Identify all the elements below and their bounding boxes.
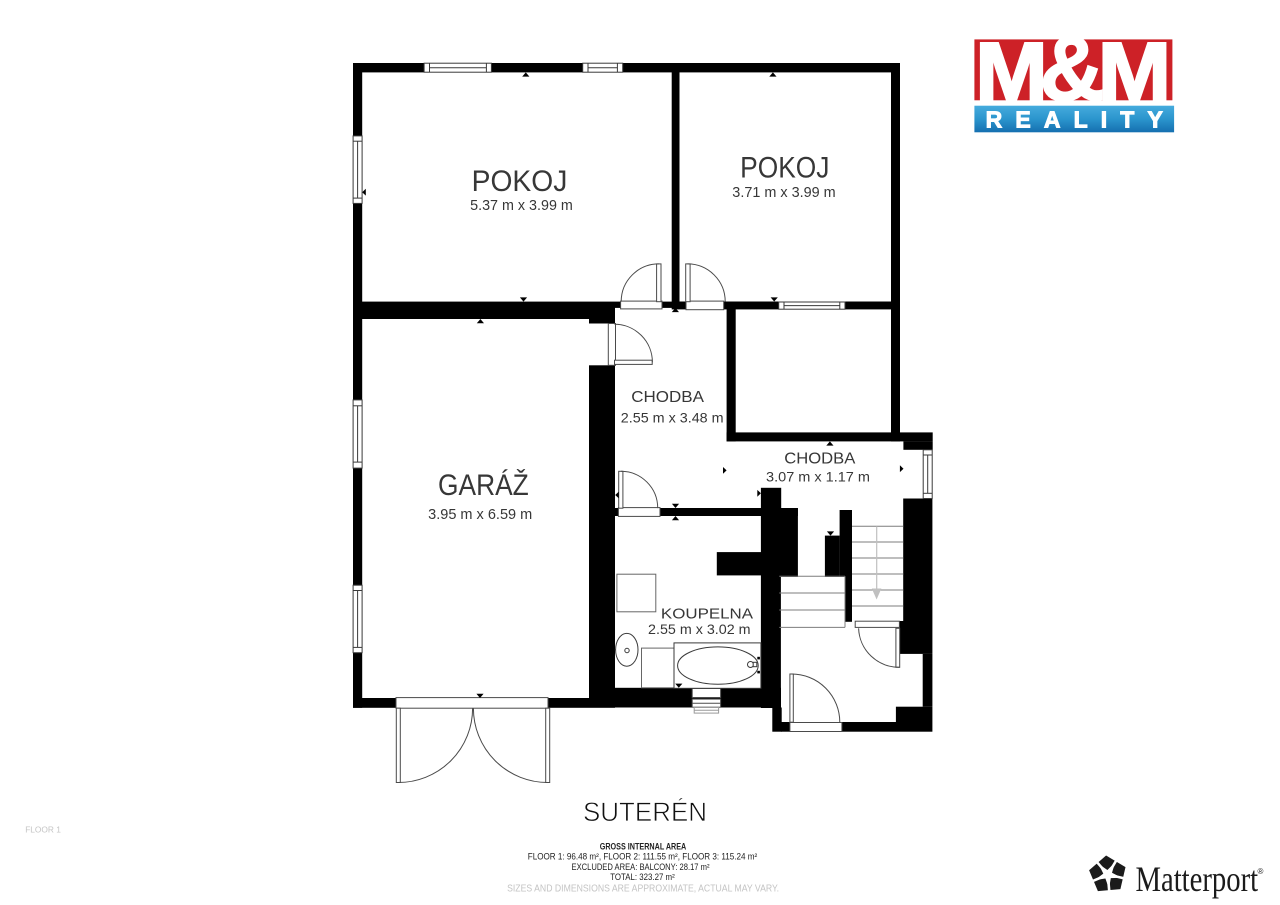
svg-text:3.95 m x 6.59 m: 3.95 m x 6.59 m xyxy=(428,506,532,523)
svg-text:Matterport: Matterport xyxy=(1136,859,1259,899)
svg-text:EXCLUDED AREA: BALCONY: 28.17: EXCLUDED AREA: BALCONY: 28.17 m² xyxy=(572,862,710,872)
svg-text:FLOOR 1: FLOOR 1 xyxy=(25,825,61,835)
svg-text:POKOJ: POKOJ xyxy=(472,165,568,198)
svg-text:TOTAL: 323.27 m²: TOTAL: 323.27 m² xyxy=(610,872,675,882)
svg-text:FLOOR 1: 96.48 m², FLOOR 2: 11: FLOOR 1: 96.48 m², FLOOR 2: 111.55 m², F… xyxy=(528,852,758,862)
svg-text:&: & xyxy=(1040,18,1105,120)
svg-text:2.55 m x 3.48 m: 2.55 m x 3.48 m xyxy=(621,410,724,426)
svg-text:CHODBA: CHODBA xyxy=(631,389,704,406)
svg-text:2.55 m x 3.02 m: 2.55 m x 3.02 m xyxy=(648,621,751,637)
svg-text:CHODBA: CHODBA xyxy=(784,450,855,467)
svg-text:5.37 m x 3.99 m: 5.37 m x 3.99 m xyxy=(470,197,573,214)
svg-text:SUTERÉN: SUTERÉN xyxy=(583,797,707,827)
svg-text:3.71 m x 3.99 m: 3.71 m x 3.99 m xyxy=(732,184,835,201)
svg-text:®: ® xyxy=(1258,867,1264,876)
svg-text:GARÁŽ: GARÁŽ xyxy=(438,469,529,502)
svg-text:KOUPELNA: KOUPELNA xyxy=(661,606,754,622)
svg-text:POKOJ: POKOJ xyxy=(740,151,829,184)
svg-text:SIZES AND DIMENSIONS ARE APPRO: SIZES AND DIMENSIONS ARE APPROXIMATE, AC… xyxy=(507,883,779,895)
svg-text:3.07 m x 1.17 m: 3.07 m x 1.17 m xyxy=(766,469,870,485)
svg-text:M: M xyxy=(975,25,1048,118)
svg-text:GROSS INTERNAL AREA: GROSS INTERNAL AREA xyxy=(600,841,687,851)
svg-text:M: M xyxy=(1098,25,1171,118)
